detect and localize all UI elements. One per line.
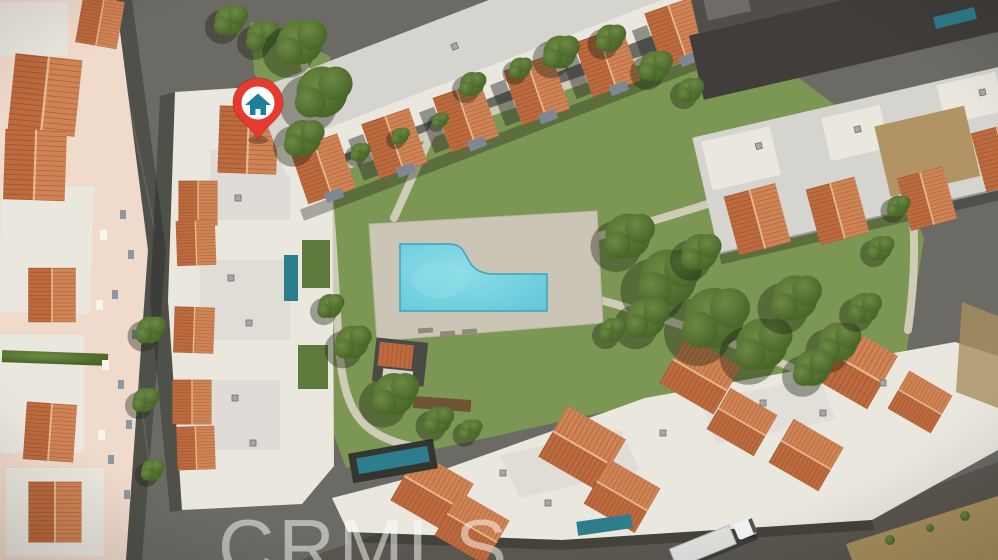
aerial-scene: CRMLS	[0, 0, 998, 560]
photo-vignette	[0, 0, 998, 560]
aerial-photo: CRMLS	[0, 0, 998, 560]
